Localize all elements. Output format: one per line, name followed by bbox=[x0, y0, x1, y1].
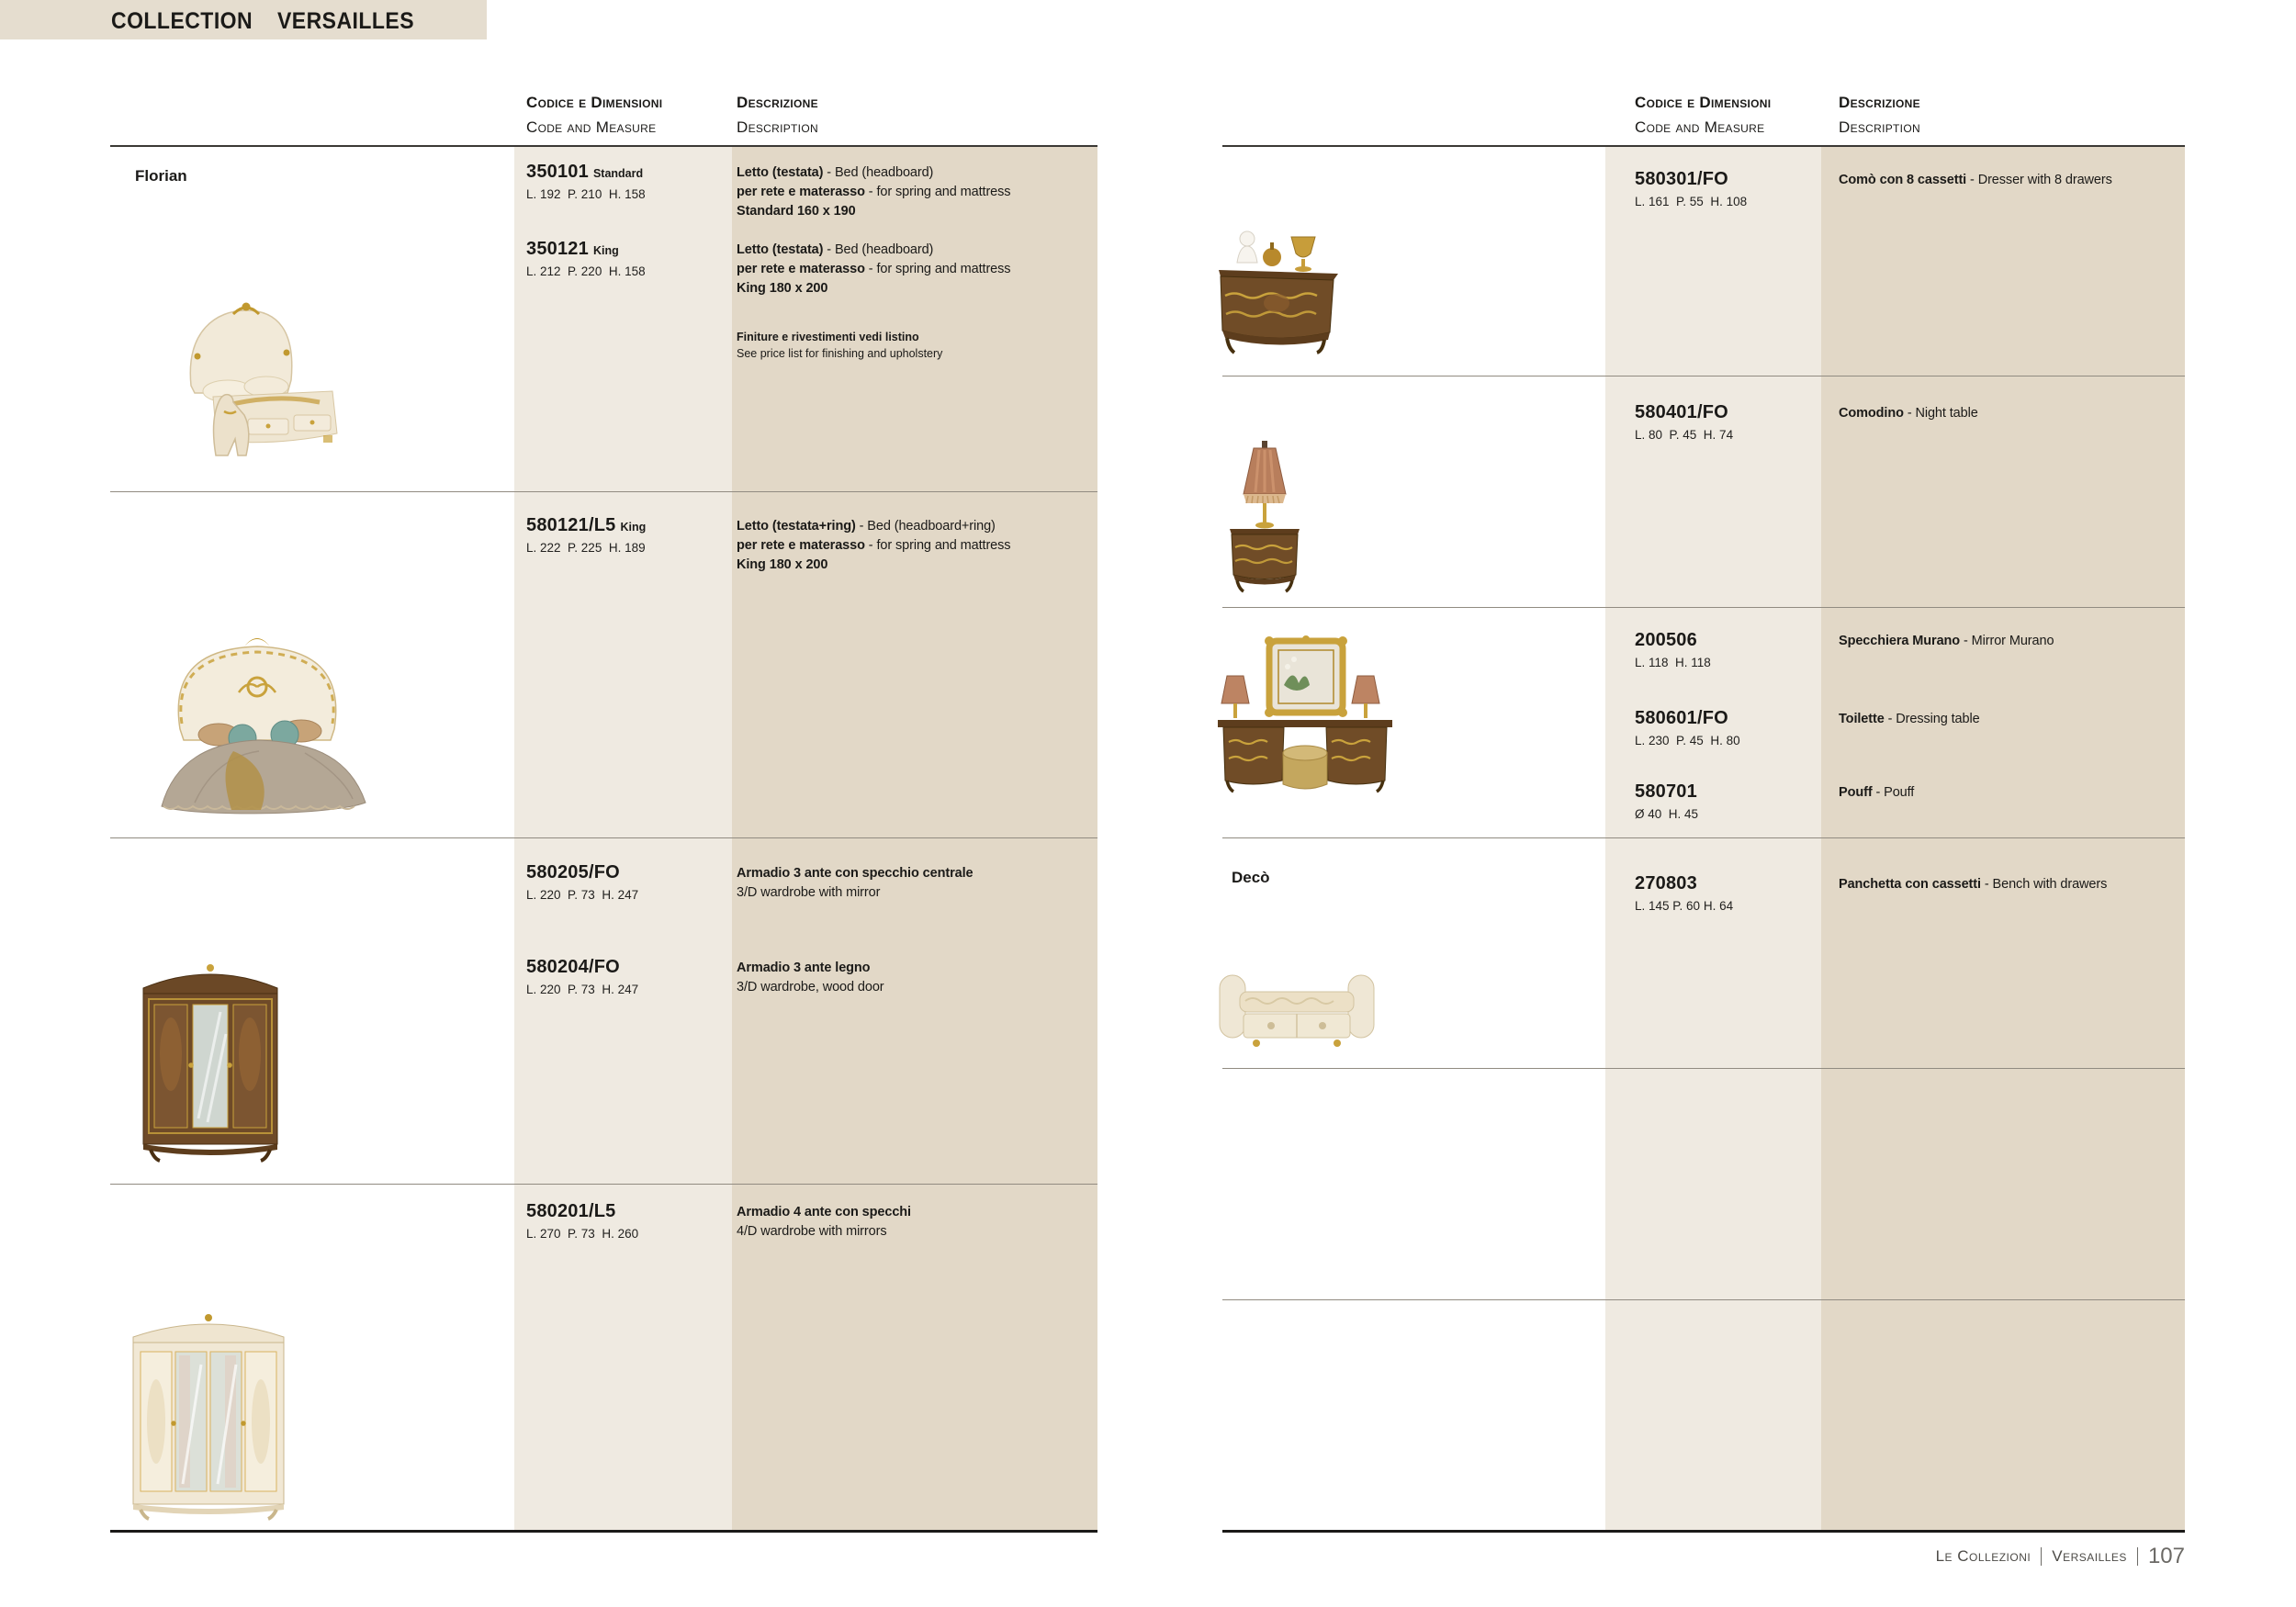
product-code: 270803 bbox=[1635, 873, 1697, 893]
product-dimensions: Ø 40 H. 45 bbox=[1635, 807, 1698, 821]
section-label-deco: Decò bbox=[1232, 869, 1270, 887]
product-code: 580301/FO bbox=[1635, 169, 1728, 189]
page-footer: Le Collezioni Versailles 107 bbox=[1936, 1544, 2185, 1569]
right-table-bottom-rule bbox=[1222, 1530, 2185, 1533]
desc-italian: Specchiera Murano bbox=[1839, 634, 1960, 648]
desc-italian: Comodino bbox=[1839, 406, 1904, 421]
desc-italian: Toilette bbox=[1839, 712, 1885, 726]
product-photo-bench bbox=[1218, 966, 1376, 1051]
product-code: 580601/FO bbox=[1635, 708, 1728, 728]
row-separator bbox=[1222, 837, 2185, 838]
right-product-table: Codice e Dimensioni Code and Measure Des… bbox=[0, 0, 2296, 1607]
row-separator bbox=[1222, 1068, 2185, 1069]
product-description: Comodino - Night table bbox=[1839, 404, 1978, 423]
footer-divider bbox=[2137, 1547, 2138, 1566]
product-code-block: 580401/FO L. 80 P. 45 H. 74 bbox=[1635, 402, 1733, 442]
column-header-code-en: Code and Measure bbox=[1635, 118, 1771, 137]
product-code: 200506 bbox=[1635, 630, 1697, 650]
product-description: Pouff - Pouff bbox=[1839, 783, 1914, 803]
row-separator bbox=[1222, 376, 2185, 376]
product-code-block: 580701 Ø 40 H. 45 bbox=[1635, 781, 1698, 821]
right-column-header-code: Codice e Dimensioni Code and Measure bbox=[1635, 94, 1771, 137]
right-table-header-rule bbox=[1222, 145, 2185, 147]
right-description-column-background bbox=[1821, 147, 2185, 1530]
desc-english: - Dressing table bbox=[1885, 712, 1980, 726]
row-separator bbox=[1222, 1299, 2185, 1300]
product-description: Specchiera Murano - Mirror Murano bbox=[1839, 632, 2054, 651]
column-header-desc-it: Descrizione bbox=[1839, 94, 1920, 112]
right-column-header-description: Descrizione Description bbox=[1839, 94, 1920, 137]
product-code: 580401/FO bbox=[1635, 402, 1728, 422]
desc-italian: Pouff bbox=[1839, 785, 1873, 800]
right-code-column-background bbox=[1605, 147, 1821, 1530]
column-header-desc-en: Description bbox=[1839, 118, 1920, 137]
product-code-block: 200506 L. 118 H. 118 bbox=[1635, 630, 1711, 669]
product-dimensions: L. 80 P. 45 H. 74 bbox=[1635, 428, 1733, 442]
footer-series-label: Le Collezioni bbox=[1936, 1547, 2032, 1566]
footer-page-number: 107 bbox=[2148, 1544, 2185, 1569]
desc-english: - Pouff bbox=[1873, 785, 1915, 800]
product-dimensions: L. 145 P. 60 H. 64 bbox=[1635, 899, 1733, 913]
desc-english: - Dresser with 8 drawers bbox=[1966, 173, 2112, 187]
desc-english: - Night table bbox=[1904, 406, 1978, 421]
product-photo-night-table-with-lamp bbox=[1224, 439, 1305, 597]
desc-italian: Comò con 8 cassetti bbox=[1839, 173, 1966, 187]
column-header-code-it: Codice e Dimensioni bbox=[1635, 94, 1771, 112]
row-separator bbox=[1222, 607, 2185, 608]
desc-english: - Bench with drawers bbox=[1981, 877, 2107, 892]
footer-collection-label: Versailles bbox=[2052, 1547, 2127, 1566]
product-dimensions: L. 230 P. 45 H. 80 bbox=[1635, 734, 1740, 747]
product-photo-dresser bbox=[1214, 222, 1343, 369]
desc-english: - Mirror Murano bbox=[1960, 634, 2054, 648]
product-code-block: 270803 L. 145 P. 60 H. 64 bbox=[1635, 873, 1733, 913]
desc-italian: Panchetta con cassetti bbox=[1839, 877, 1981, 892]
product-dimensions: L. 118 H. 118 bbox=[1635, 656, 1711, 669]
product-description: Panchetta con cassetti - Bench with draw… bbox=[1839, 875, 2107, 894]
product-description: Toilette - Dressing table bbox=[1839, 710, 1980, 729]
footer-divider bbox=[2041, 1547, 2042, 1566]
product-code-block: 580601/FO L. 230 P. 45 H. 80 bbox=[1635, 708, 1740, 747]
product-code: 580701 bbox=[1635, 781, 1697, 802]
product-code-block: 580301/FO L. 161 P. 55 H. 108 bbox=[1635, 169, 1747, 208]
product-dimensions: L. 161 P. 55 H. 108 bbox=[1635, 195, 1747, 208]
product-description: Comò con 8 cassetti - Dresser with 8 dra… bbox=[1839, 171, 2112, 190]
product-photo-dressing-table-set bbox=[1218, 634, 1392, 828]
